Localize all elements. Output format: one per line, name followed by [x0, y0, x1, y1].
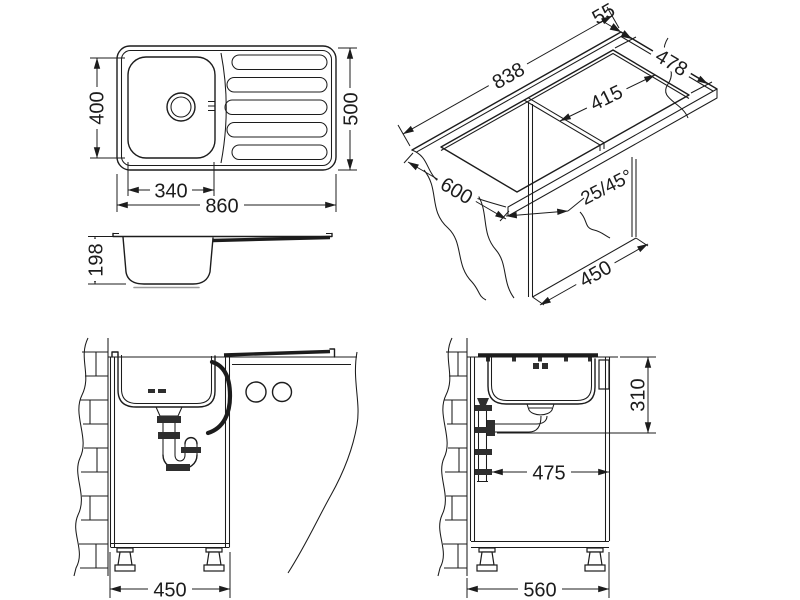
technical-drawing-page: 400 340 860 500	[0, 0, 800, 600]
dim-worktop-depth: 600	[404, 153, 509, 221]
brand-mark-side	[533, 363, 548, 369]
wall-right	[438, 338, 467, 576]
dim-bowl-depth: 400	[87, 58, 126, 158]
dim-drainer-cutout-length: 415	[560, 75, 655, 121]
dim-label-edge-chamfer: 25/45°	[578, 166, 637, 210]
dim-drain-height: 310	[497, 357, 656, 433]
rim-clips	[486, 358, 592, 362]
dim-label-overall-width: 500	[341, 92, 363, 125]
cabinet-panel-left-edge	[529, 102, 533, 297]
cabinet-break-wavy	[580, 212, 610, 238]
cabinet-leg	[115, 548, 135, 571]
drainer-profile	[213, 238, 330, 241]
bowl-profile	[123, 237, 213, 284]
dim-label-bowl-height: 198	[86, 243, 108, 276]
worktop-front-face	[508, 89, 717, 216]
cabinet-leg	[477, 548, 497, 571]
bowl-front-section	[118, 355, 215, 407]
cabinet-leg	[585, 548, 605, 571]
wall-left	[74, 338, 108, 576]
profile-view: 198	[86, 234, 333, 288]
iso-view: 838 55 478 415	[398, 0, 717, 305]
cabinet-leg	[204, 548, 224, 571]
knockout-hole	[273, 383, 292, 402]
siphon-trap	[156, 407, 201, 471]
dim-label-drain-offset: 475	[532, 463, 565, 485]
dim-label-cabinet-depth: 560	[523, 580, 556, 600]
cabinet-panel-right-edge	[632, 157, 636, 237]
sink-technical-drawing: 400 340 860 500	[0, 0, 800, 600]
mounting-clip	[599, 360, 609, 389]
top-view: 400 340 860 500	[87, 46, 363, 218]
break-edge-right	[288, 352, 358, 573]
knockout-hole	[246, 382, 266, 402]
brand-mark	[148, 389, 166, 393]
side-install-view: 310 475 560	[438, 338, 656, 600]
drainer-ribs	[225, 55, 327, 160]
front-install-view: 450	[74, 338, 358, 600]
dim-label-bowl-depth: 400	[87, 91, 109, 124]
dim-label-bowl-width: 340	[154, 181, 187, 203]
dim-cutout-length: 838	[398, 7, 619, 146]
dim-edge-chamfer: 25/45°	[506, 166, 636, 216]
dim-label-overall-length: 860	[205, 196, 238, 218]
overflow-marks	[208, 102, 215, 111]
bowl-side-section	[488, 357, 595, 404]
dim-iso-cabinet-width: 450	[533, 238, 649, 305]
worktop-cutout	[441, 50, 689, 192]
dim-label-drain-height: 310	[628, 378, 650, 411]
dim-bowl-width: 340	[128, 162, 214, 203]
dim-drain-offset: 475	[492, 463, 609, 485]
drainer-edge-profile	[224, 352, 330, 356]
dim-bowl-height: 198	[86, 237, 127, 285]
dim-overall-length: 860	[117, 174, 336, 218]
dim-overall-width: 500	[338, 48, 363, 170]
dim-label-cabinet-width: 450	[153, 580, 186, 600]
